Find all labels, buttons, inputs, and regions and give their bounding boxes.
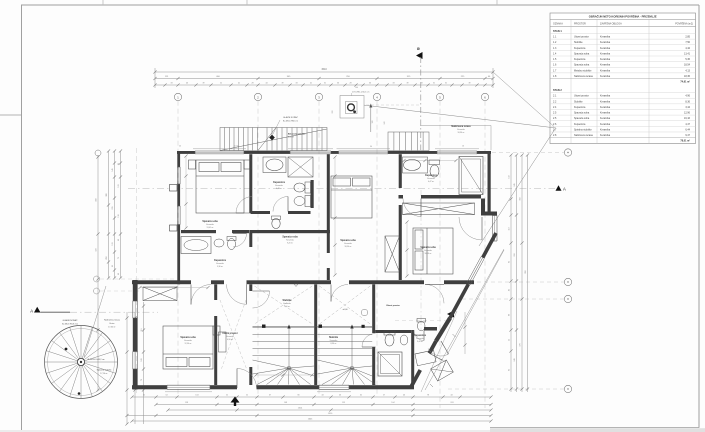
- svg-text:Keramika: Keramika: [275, 185, 283, 187]
- svg-text:OZNAKA: OZNAKA: [553, 23, 563, 26]
- svg-text:Natkrivena terasa: Natkrivena terasa: [104, 319, 121, 322]
- svg-text:Keramika: Keramika: [600, 123, 611, 126]
- svg-text:120: 120: [118, 184, 120, 187]
- svg-text:39: 39: [202, 82, 204, 84]
- svg-text:Keramika: Keramika: [283, 303, 291, 305]
- svg-text:Kupaonica: Kupaonica: [574, 123, 586, 126]
- svg-text:16: 16: [462, 146, 464, 148]
- svg-text:31: 31: [433, 82, 435, 84]
- svg-text:4,47: 4,47: [685, 123, 690, 126]
- svg-text:140: 140: [355, 87, 358, 89]
- svg-text:148: 148: [284, 402, 287, 404]
- svg-text:78: 78: [427, 394, 429, 396]
- svg-text:3,44 m²: 3,44 m²: [417, 340, 423, 343]
- svg-text:Spavaća soba: Spavaća soba: [340, 240, 356, 242]
- svg-text:4,42 m²: 4,42 m²: [276, 187, 282, 190]
- svg-text:78,01 m²: 78,01 m²: [680, 139, 690, 143]
- svg-text:Stubište: Stubište: [329, 336, 339, 339]
- svg-text:95: 95: [508, 261, 510, 263]
- svg-text:Keramika: Keramika: [184, 340, 192, 342]
- svg-text:4,96 m²: 4,96 m²: [227, 338, 233, 341]
- svg-text:70: 70: [141, 379, 143, 381]
- svg-text:Keramika: Keramika: [600, 52, 611, 55]
- svg-text:Kupaonica: Kupaonica: [574, 106, 586, 109]
- svg-text:36: 36: [337, 82, 339, 84]
- svg-text:74,61 m²: 74,61 m²: [680, 80, 690, 84]
- svg-text:Ulazni prostor: Ulazni prostor: [574, 36, 589, 39]
- svg-text:17,35 m²: 17,35 m²: [108, 326, 116, 329]
- svg-text:Ulazni prostor: Ulazni prostor: [386, 304, 400, 307]
- svg-text:B: B: [417, 47, 421, 50]
- svg-text:16,16 m²: 16,16 m²: [424, 252, 431, 255]
- svg-text:110: 110: [508, 227, 510, 230]
- svg-text:Keramika: Keramika: [600, 117, 611, 120]
- svg-text:PROSTOR: PROSTOR: [574, 23, 586, 26]
- svg-text:Spiralno stubište: Spiralno stubište: [97, 369, 113, 372]
- svg-text:145: 145: [112, 168, 114, 171]
- svg-text:Beton: Beton: [110, 322, 115, 325]
- svg-text:95: 95: [112, 265, 114, 267]
- svg-text:Spavaća soba: Spavaća soba: [574, 52, 590, 55]
- svg-text:Keramika: Keramika: [600, 95, 611, 98]
- svg-text:Natkrivena terasa: Natkrivena terasa: [574, 75, 593, 78]
- svg-text:60: 60: [118, 239, 120, 241]
- svg-text:57: 57: [383, 394, 385, 396]
- svg-text:Keramika: Keramika: [600, 58, 611, 61]
- svg-text:80: 80: [297, 394, 299, 396]
- svg-text:200: 200: [332, 111, 334, 114]
- svg-text:31: 31: [445, 82, 447, 84]
- svg-text:80: 80: [508, 314, 510, 316]
- svg-text:Kupaonica: Kupaonica: [214, 260, 226, 262]
- svg-text:Spavaća soba: Spavaća soba: [574, 117, 590, 120]
- svg-text:Keramika: Keramika: [600, 128, 611, 131]
- svg-text:Kupaonica: Kupaonica: [574, 58, 586, 61]
- svg-text:104: 104: [195, 394, 198, 396]
- svg-text:104: 104: [391, 402, 394, 404]
- svg-text:18,36 m²: 18,36 m²: [457, 131, 464, 134]
- svg-text:Spavaća soba: Spavaća soba: [574, 64, 590, 67]
- svg-text:GLAVNI NOŠAČ: GLAVNI NOŠAČ: [283, 116, 298, 119]
- svg-text:158: 158: [185, 402, 188, 404]
- svg-text:Spavaća soba: Spavaća soba: [202, 221, 218, 223]
- svg-text:36: 36: [369, 82, 371, 84]
- svg-text:Kupaonica: Kupaonica: [414, 335, 426, 337]
- svg-text:44: 44: [265, 82, 267, 84]
- svg-text:95: 95: [508, 369, 510, 371]
- svg-text:Stubište: Stubište: [574, 41, 583, 44]
- svg-text:GLAVNI NOŠAČ: GLAVNI NOŠAČ: [63, 319, 78, 322]
- svg-text:Keramika: Keramika: [600, 106, 611, 109]
- svg-text:Spavaća soba: Spavaća soba: [282, 237, 298, 239]
- svg-text:4,47 m²: 4,47 m²: [428, 180, 434, 183]
- svg-text:Keramika: Keramika: [600, 36, 611, 39]
- svg-text:20: 20: [179, 146, 181, 148]
- svg-text:17,10 m²: 17,10 m²: [100, 372, 108, 375]
- svg-text:Kupaonica: Kupaonica: [574, 47, 586, 50]
- svg-text:Metalno stubište: Metalno stubište: [574, 69, 592, 72]
- svg-text:POVRŠINA (m2): POVRŠINA (m2): [675, 23, 693, 26]
- svg-text:7,50: 7,50: [685, 41, 690, 44]
- svg-text:Keramika: Keramika: [330, 340, 338, 342]
- svg-text:245: 245: [514, 183, 516, 186]
- svg-text:Natkrivena terasa: Natkrivena terasa: [574, 134, 593, 137]
- svg-text:Keramika: Keramika: [424, 250, 432, 252]
- svg-text:33: 33: [392, 82, 394, 84]
- svg-text:39: 39: [468, 82, 470, 84]
- svg-text:62: 62: [143, 394, 145, 396]
- svg-text:DxV Ø81,1/40,5 cm: DxV Ø81,1/40,5 cm: [352, 91, 370, 93]
- svg-text:130: 130: [118, 214, 120, 217]
- svg-text:45: 45: [508, 289, 510, 291]
- svg-text:120: 120: [112, 242, 114, 245]
- svg-text:320: 320: [95, 248, 97, 251]
- svg-text:28: 28: [349, 82, 351, 84]
- svg-text:+0,00: +0,00: [293, 281, 299, 283]
- svg-text:Stubište: Stubište: [282, 299, 292, 302]
- svg-text:Spavaća soba: Spavaća soba: [420, 247, 436, 249]
- svg-text:Keramika: Keramika: [600, 75, 611, 78]
- svg-text:203: 203: [450, 402, 453, 404]
- svg-text:Keramika: Keramika: [206, 224, 214, 226]
- svg-text:370: 370: [519, 343, 521, 346]
- svg-text:180: 180: [141, 358, 143, 361]
- svg-text:Kupaonica: Kupaonica: [273, 182, 285, 184]
- svg-text:STAN 2: STAN 2: [553, 89, 562, 92]
- svg-text:44: 44: [321, 394, 323, 396]
- svg-text:13,41 m²: 13,41 m²: [206, 226, 213, 229]
- svg-text:8,36 m²: 8,36 m²: [330, 342, 336, 345]
- svg-text:90: 90: [370, 146, 372, 148]
- svg-text:240: 240: [514, 358, 516, 361]
- svg-text:Ø GkOS C=93,2 cm: Ø GkOS C=93,2 cm: [88, 359, 105, 361]
- svg-text:115: 115: [141, 328, 143, 331]
- svg-text:Keramika: Keramika: [600, 47, 611, 50]
- svg-text:2,85: 2,85: [685, 36, 690, 39]
- svg-text:12,96: 12,96: [684, 112, 691, 115]
- svg-text:Keramika: Keramika: [600, 69, 611, 72]
- svg-text:7,50 m²: 7,50 m²: [284, 305, 290, 308]
- svg-text:Keramika: Keramika: [600, 64, 611, 67]
- svg-text:33: 33: [295, 82, 297, 84]
- svg-text:55: 55: [508, 339, 510, 341]
- svg-text:16,16: 16,16: [684, 117, 691, 120]
- svg-text:Kupaonica: Kupaonica: [425, 175, 437, 177]
- svg-text:39: 39: [281, 82, 283, 84]
- svg-text:18,54: 18,54: [684, 64, 691, 67]
- svg-text:150: 150: [508, 175, 510, 178]
- svg-text:8,36: 8,36: [685, 100, 690, 103]
- svg-text:Keramika: Keramika: [600, 112, 611, 115]
- svg-text:Spiralno stubište: Spiralno stubište: [574, 128, 592, 131]
- svg-text:60: 60: [118, 273, 120, 275]
- svg-text:Keramika: Keramika: [286, 240, 294, 242]
- svg-text:Keramika: Keramika: [226, 336, 234, 338]
- svg-text:B+185,5 H50 cm: B+185,5 H50 cm: [283, 121, 298, 123]
- svg-text:45: 45: [118, 163, 120, 165]
- svg-text:3,44: 3,44: [685, 106, 690, 109]
- svg-text:Stubište: Stubište: [574, 100, 583, 103]
- svg-text:STAN 1: STAN 1: [553, 30, 562, 33]
- svg-text:Spavaća soba: Spavaća soba: [180, 337, 196, 339]
- svg-text:67: 67: [269, 394, 271, 396]
- svg-text:Keramika: Keramika: [216, 263, 224, 265]
- svg-text:46: 46: [339, 394, 341, 396]
- svg-text:B+186,5 H/0,8 mm: B+186,5 H/0,8 mm: [62, 324, 78, 326]
- svg-text:5,36 m²: 5,36 m²: [217, 265, 223, 268]
- svg-text:Ulazni prostor: Ulazni prostor: [222, 332, 238, 335]
- svg-text:52: 52: [226, 394, 228, 396]
- svg-text:±0,00: ±0,00: [343, 309, 349, 311]
- svg-text:18,54 m²: 18,54 m²: [344, 245, 351, 248]
- svg-text:52: 52: [220, 82, 222, 84]
- svg-text:260: 260: [514, 253, 516, 256]
- svg-text:41: 41: [310, 82, 312, 84]
- svg-text:A: A: [30, 308, 33, 313]
- svg-text:5,36: 5,36: [685, 58, 690, 61]
- svg-text:4,42: 4,42: [685, 47, 690, 50]
- svg-text:9,20 m²: 9,20 m²: [287, 241, 293, 244]
- svg-text:Natkrivena terasa: Natkrivena terasa: [451, 125, 471, 128]
- svg-text:Keramika: Keramika: [600, 41, 611, 44]
- svg-text:62: 62: [360, 394, 362, 396]
- svg-text:46: 46: [186, 82, 188, 84]
- svg-text:153: 153: [342, 402, 345, 404]
- svg-text:54: 54: [165, 394, 167, 396]
- svg-text:12,96 m²: 12,96 m²: [184, 342, 191, 345]
- svg-text:Spavaća soba: Spavaća soba: [574, 112, 590, 115]
- svg-text:Keramika: Keramika: [457, 129, 465, 131]
- svg-text:Keramika: Keramika: [416, 338, 424, 340]
- svg-text:31: 31: [324, 82, 326, 84]
- svg-text:ZAVRŠNA OBLOGA: ZAVRŠNA OBLOGA: [600, 23, 622, 26]
- svg-text:Betonsko stubište: Betonsko stubište: [288, 132, 306, 135]
- svg-text:Keramika: Keramika: [427, 178, 435, 180]
- svg-text:75: 75: [118, 257, 120, 259]
- svg-text:39: 39: [406, 82, 408, 84]
- svg-text:13,41: 13,41: [684, 52, 691, 55]
- svg-text:Keramika: Keramika: [600, 134, 611, 137]
- svg-text:4,96: 4,96: [685, 95, 690, 98]
- svg-text:4,13: 4,13: [685, 69, 690, 72]
- svg-text:33: 33: [170, 82, 172, 84]
- svg-text:B+1,48: B+1,48: [288, 137, 294, 139]
- svg-text:1510: 1510: [321, 68, 327, 71]
- svg-text:Ulazni prostor: Ulazni prostor: [574, 95, 589, 98]
- svg-text:28: 28: [251, 82, 253, 84]
- svg-text:41: 41: [238, 82, 240, 84]
- svg-text:240: 240: [384, 122, 386, 125]
- svg-text:18,36: 18,36: [684, 75, 691, 78]
- svg-text:6,44: 6,44: [685, 128, 690, 131]
- svg-text:430: 430: [95, 198, 97, 201]
- svg-text:44: 44: [450, 394, 452, 396]
- svg-text:180: 180: [372, 121, 374, 124]
- svg-text:360: 360: [519, 197, 521, 200]
- svg-text:Keramika: Keramika: [344, 243, 352, 245]
- svg-text:46: 46: [403, 394, 405, 396]
- svg-text:205: 205: [112, 206, 114, 209]
- svg-text:A: A: [563, 187, 566, 192]
- svg-text:Keramika: Keramika: [600, 100, 611, 103]
- svg-text:9,47: 9,47: [685, 134, 690, 137]
- svg-text:52: 52: [246, 394, 248, 396]
